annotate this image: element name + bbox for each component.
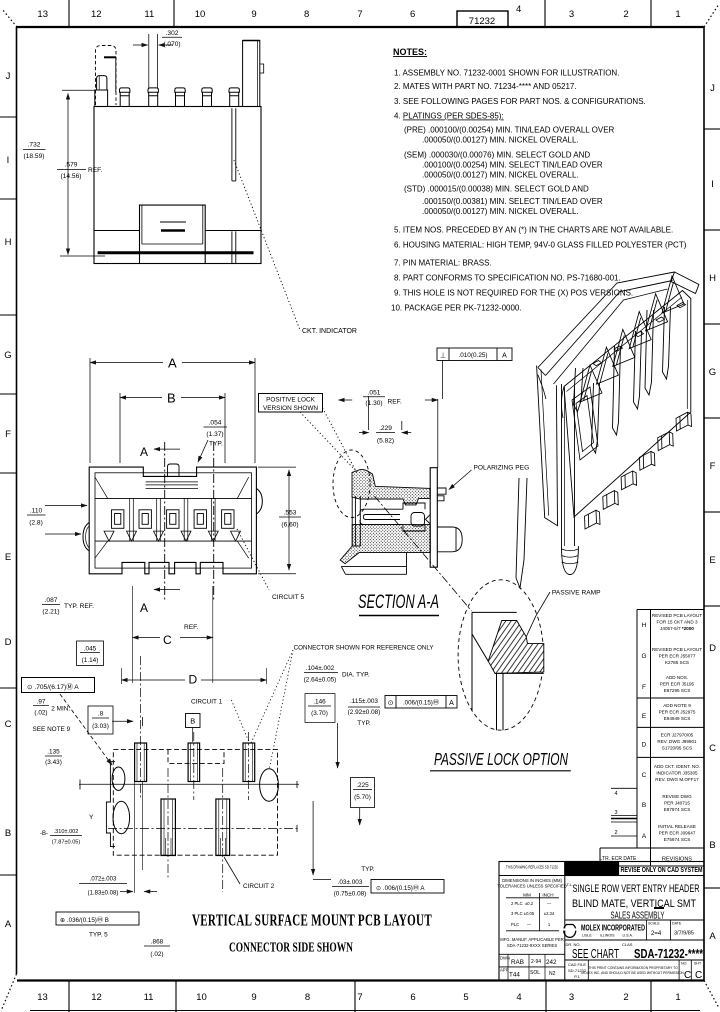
svg-text:.579: .579 xyxy=(65,162,78,169)
svg-text:TYP.: TYP. xyxy=(361,866,375,873)
svg-text:6: 6 xyxy=(410,9,415,20)
svg-text:4: 4 xyxy=(516,4,521,15)
svg-text:⊙: ⊙ xyxy=(388,700,394,707)
svg-text:(18.59): (18.59) xyxy=(24,153,45,160)
svg-text:TYP.: TYP. xyxy=(209,441,223,448)
svg-text:.110: .110 xyxy=(30,508,43,515)
svg-text:5. ITEM NOS. PRECEDED BY AN (*: 5. ITEM NOS. PRECEDED BY AN (*) IN THE C… xyxy=(394,226,673,235)
svg-text:SOL: SOL xyxy=(530,970,540,976)
svg-text:.000150/(0.00381) MIN. SELECT: .000150/(0.00381) MIN. SELECT TIN/LEAD O… xyxy=(422,197,603,206)
svg-text:6. HOUSING MATERIAL: HIGH TEMP: 6. HOUSING MATERIAL: HIGH TEMP, 94V-0 GL… xyxy=(394,241,687,250)
svg-text:SDA-71232-9XXX SERIES: SDA-71232-9XXX SERIES xyxy=(507,943,557,948)
svg-text:DIA. TYP.: DIA. TYP. xyxy=(342,672,370,679)
svg-text:ADD CKT. IDENT. NO.: ADD CKT. IDENT. NO. xyxy=(654,764,700,769)
svg-text:E94949 SCS: E94949 SCS xyxy=(664,716,691,721)
svg-text:B: B xyxy=(5,828,11,839)
svg-text:B: B xyxy=(709,840,715,851)
svg-text:13: 13 xyxy=(37,992,48,1003)
svg-text:(1.83±0.08): (1.83±0.08) xyxy=(88,891,119,897)
svg-text:(3.03): (3.03) xyxy=(92,723,109,730)
svg-text:PER ECR J55077: PER ECR J55077 xyxy=(659,654,696,659)
svg-text:(PRE) .000100/(0.00254) MIN. T: (PRE) .000100/(0.00254) MIN. TIN/LEAD OV… xyxy=(404,126,615,135)
svg-text:NO.: NO. xyxy=(681,962,687,966)
svg-text:3/7/9/85: 3/7/9/85 xyxy=(674,931,694,937)
svg-text:MFG. MANUF. APPLICABLE PER: MFG. MANUF. APPLICABLE PER xyxy=(500,937,564,942)
svg-text:.115±.003: .115±.003 xyxy=(350,698,378,705)
svg-text:N2: N2 xyxy=(549,971,556,977)
svg-text:.03±.003: .03±.003 xyxy=(338,879,363,886)
svg-text:12: 12 xyxy=(91,992,102,1003)
svg-text:A: A xyxy=(140,601,148,615)
svg-text:(2.21): (2.21) xyxy=(42,609,59,616)
svg-text:K2785 SCS: K2785 SCS xyxy=(665,660,689,665)
svg-text:10. PACKAGE PER PK-71232-0000.: 10. PACKAGE PER PK-71232-0000. xyxy=(391,304,522,313)
svg-text:B: B xyxy=(167,391,176,406)
svg-text:242: 242 xyxy=(546,959,557,966)
svg-text:SINGLE ROW VERT ENTRY HEADER: SINGLE ROW VERT ENTRY HEADER xyxy=(573,883,700,895)
svg-text:D: D xyxy=(642,742,647,749)
svg-text:PER ECR J5195: PER ECR J5195 xyxy=(660,682,695,687)
svg-text:REF.: REF. xyxy=(88,167,102,174)
svg-text:3: 3 xyxy=(569,992,574,1003)
svg-text:2: 2 xyxy=(623,992,628,1003)
svg-text:H: H xyxy=(642,622,647,629)
svg-text:2 MIN.: 2 MIN. xyxy=(51,706,70,713)
svg-text:2 PLC: 2 PLC xyxy=(511,901,523,906)
svg-text:THIS PRINT CONTAINS INFORMATIO: THIS PRINT CONTAINS INFORMATION PROPRIET… xyxy=(588,966,678,970)
svg-text:PER ECR J09647: PER ECR J09647 xyxy=(659,831,696,836)
svg-text:I: I xyxy=(7,155,10,166)
svg-text:REV. DWG J99901: REV. DWG J99901 xyxy=(657,739,697,744)
svg-text:(1.30): (1.30) xyxy=(365,400,382,407)
svg-text:.146: .146 xyxy=(313,699,326,706)
svg-text:PASSIVE RAMP: PASSIVE RAMP xyxy=(552,590,601,597)
svg-text:E87974 SCS: E87974 SCS xyxy=(664,807,691,812)
svg-text:1: 1 xyxy=(675,9,680,20)
svg-text:(14.56): (14.56) xyxy=(61,173,82,180)
svg-text:71232: 71232 xyxy=(469,16,495,27)
svg-text:D: D xyxy=(709,643,716,654)
svg-text:.225: .225 xyxy=(356,782,369,789)
svg-text:CIRCUIT 5: CIRCUIT 5 xyxy=(272,594,304,601)
svg-text:7: 7 xyxy=(357,992,362,1003)
svg-text:.000100/(0.00254) MIN. SELECT: .000100/(0.00254) MIN. SELECT TIN/LEAD O… xyxy=(422,161,603,170)
svg-text:DIMENSIONS IN INCHES (MM): DIMENSIONS IN INCHES (MM) xyxy=(502,878,562,883)
svg-text:3: 3 xyxy=(614,810,617,816)
svg-text:I: I xyxy=(711,179,714,190)
svg-text:E: E xyxy=(709,555,715,566)
svg-text:REVISED PCB LAYOUT: REVISED PCB LAYOUT xyxy=(652,647,702,652)
svg-text:9. THIS HOLE IS NOT REQUIRED F: 9. THIS HOLE IS NOT REQUIRED FOR THE (X)… xyxy=(394,289,633,298)
svg-text:±0.05: ±0.05 xyxy=(524,911,535,916)
svg-text:7: 7 xyxy=(357,9,362,20)
svg-text:INCH: INCH xyxy=(542,893,553,898)
svg-text:9: 9 xyxy=(251,992,256,1003)
svg-text:(7.87±0.05): (7.87±0.05) xyxy=(52,840,81,846)
svg-text:1. ASSEMBLY NO. 71232-0001 SHO: 1. ASSEMBLY NO. 71232-0001 SHOWN FOR ILL… xyxy=(394,69,619,78)
svg-text:.302: .302 xyxy=(166,30,179,37)
svg-text:G: G xyxy=(709,367,716,378)
svg-text:E: E xyxy=(642,713,647,720)
svg-text:12: 12 xyxy=(91,9,102,20)
svg-text:10: 10 xyxy=(196,992,207,1003)
svg-text:⊥: ⊥ xyxy=(440,353,446,360)
svg-text:(.070): (.070) xyxy=(163,41,180,48)
svg-text:J4057-5/7 *2000: J4057-5/7 *2000 xyxy=(660,626,694,631)
svg-text:LISLE ILLINOIS U: LISLE ILLINOIS U.S.A. xyxy=(582,934,633,938)
svg-text:(SEM) .000030/(0.00076) MIN. S: (SEM) .000030/(0.00076) MIN. SELECT GOLD… xyxy=(404,151,590,160)
svg-text:D: D xyxy=(189,673,198,687)
svg-text:.732: .732 xyxy=(28,142,41,149)
svg-text:.104±.002: .104±.002 xyxy=(306,665,335,672)
svg-text:3. SEE FOLLOWING PAGES FOR PAR: 3. SEE FOLLOWING PAGES FOR PART NOS. & C… xyxy=(394,97,646,106)
svg-text:S1720/95 SCS: S1720/95 SCS xyxy=(662,746,692,751)
svg-text:.000050/(0.00127) MIN. NICKEL: .000050/(0.00127) MIN. NICKEL OVERALL. xyxy=(422,207,579,216)
svg-text:PASSIVE LOCK OPTION: PASSIVE LOCK OPTION xyxy=(434,749,568,769)
svg-text:(5.70): (5.70) xyxy=(354,794,371,801)
svg-text:F: F xyxy=(642,684,646,691)
svg-text:4: 4 xyxy=(614,791,617,797)
svg-text:.553: .553 xyxy=(284,510,297,517)
svg-text:6: 6 xyxy=(410,992,415,1003)
svg-text:POLARIZING PEG: POLARIZING PEG xyxy=(474,465,530,472)
svg-text:PER J40715: PER J40715 xyxy=(664,801,690,806)
svg-text:.135: .135 xyxy=(47,749,60,756)
svg-text:(2.64±0.05): (2.64±0.05) xyxy=(304,677,337,684)
svg-text:H: H xyxy=(5,237,12,248)
svg-text:G: G xyxy=(641,653,646,660)
svg-text:(2.8): (2.8) xyxy=(29,520,43,527)
svg-text:⊙ .705/(6.17)Ⓜ A: ⊙ .705/(6.17)Ⓜ A xyxy=(27,683,79,691)
svg-text:E87295 SCS: E87295 SCS xyxy=(664,688,691,693)
svg-text:VERTICAL SURFACE MOUNT PCB LAY: VERTICAL SURFACE MOUNT PCB LAYOUT xyxy=(192,911,432,930)
svg-text:11: 11 xyxy=(144,992,154,1003)
svg-text:SDA-71232-****: SDA-71232-**** xyxy=(634,947,703,961)
svg-text:TYP. 5: TYP. 5 xyxy=(89,932,108,939)
svg-text:NOTES:: NOTES: xyxy=(393,47,427,57)
svg-text:SEE CHART: SEE CHART xyxy=(572,947,619,961)
svg-text:2-94: 2-94 xyxy=(531,959,541,965)
svg-text:(6.60): (6.60) xyxy=(281,522,298,529)
svg-text:8: 8 xyxy=(305,992,310,1003)
svg-text:TOLERANCES UNLESS SPECIFIED: TOLERANCES UNLESS SPECIFIED xyxy=(497,884,567,889)
svg-text:C: C xyxy=(684,970,691,981)
svg-text:T44: T44 xyxy=(509,972,520,979)
svg-text:⊙ .006/(0.15)Ⓜ A: ⊙ .006/(0.15)Ⓜ A xyxy=(376,884,425,892)
svg-text:ADD NOS.: ADD NOS. xyxy=(666,675,688,680)
svg-text:DATE: DATE xyxy=(672,922,682,926)
svg-text:REF.: REF. xyxy=(184,624,198,631)
svg-text:.072±.003: .072±.003 xyxy=(90,877,117,883)
svg-text:A: A xyxy=(5,919,12,930)
svg-text:3: 3 xyxy=(569,9,574,20)
svg-text:.97: .97 xyxy=(37,699,46,706)
svg-text:(STD) .000015/(0.00038) MIN. S: (STD) .000015/(0.00038) MIN. SELECT GOLD… xyxy=(404,185,589,194)
svg-text:-B-: -B- xyxy=(40,831,48,837)
svg-text:SECTION A-A: SECTION A-A xyxy=(358,592,439,613)
svg-text:2: 2 xyxy=(614,830,617,836)
svg-text:A: A xyxy=(140,445,148,459)
svg-text:DWN: DWN xyxy=(500,956,510,961)
svg-text:11: 11 xyxy=(144,9,154,20)
svg-text:2: 2 xyxy=(623,9,628,20)
svg-text:.010(0.25): .010(0.25) xyxy=(458,352,487,359)
svg-text:.045: .045 xyxy=(84,646,97,653)
svg-text:(1.14): (1.14) xyxy=(82,657,99,664)
svg-text:.229: .229 xyxy=(379,425,392,432)
svg-text:BLIND MATE, VERTICAL SMT: BLIND MATE, VERTICAL SMT xyxy=(572,898,696,910)
svg-text:TYP. REF.: TYP. REF. xyxy=(64,603,94,610)
svg-text:C: C xyxy=(163,633,172,647)
svg-text:4. PLATINGS (PER SDES-85):: 4. PLATINGS (PER SDES-85): xyxy=(394,112,504,121)
svg-text:APP: APP xyxy=(500,968,509,973)
svg-text:(5.82): (5.82) xyxy=(377,438,394,445)
svg-text:⊕ .036/(0.15)Ⓜ B: ⊕ .036/(0.15)Ⓜ B xyxy=(60,916,109,924)
svg-text:10: 10 xyxy=(195,9,206,20)
svg-text:A: A xyxy=(502,353,507,360)
svg-text:.006/(0.15)Ⓜ: .006/(0.15)Ⓜ xyxy=(403,699,439,707)
svg-text:C: C xyxy=(695,970,702,981)
svg-text:INITIAL RELEASE: INITIAL RELEASE xyxy=(658,824,696,829)
svg-text:Y: Y xyxy=(89,814,94,821)
svg-text:E75674 SCS: E75674 SCS xyxy=(664,837,691,842)
svg-text:.8: .8 xyxy=(98,711,104,718)
svg-text:REVISE DWG: REVISE DWG xyxy=(662,794,692,799)
svg-text:J: J xyxy=(6,71,11,82)
svg-text:REVISED PCB LAYOUT: REVISED PCB LAYOUT xyxy=(652,613,702,618)
svg-text:(3.43): (3.43) xyxy=(45,759,62,766)
svg-text:MOLEX INC. AND SHOULD NOT BE U: MOLEX INC. AND SHOULD NOT BE USED WITHOU… xyxy=(581,971,684,975)
svg-text:.310±.002: .310±.002 xyxy=(54,829,79,835)
svg-text:REVISE ONLY ON CAD SYSTEM: REVISE ONLY ON CAD SYSTEM xyxy=(621,865,703,874)
svg-text:±0.2: ±0.2 xyxy=(525,901,534,906)
svg-text:SALES ASSEMBLY: SALES ASSEMBLY xyxy=(611,911,665,922)
svg-text:CLAS: CLAS xyxy=(622,942,633,947)
svg-text:G: G xyxy=(4,350,11,361)
svg-text:4: 4 xyxy=(516,992,521,1003)
svg-text:13: 13 xyxy=(37,9,48,20)
svg-text:FOR 15 CKT AND 3: FOR 15 CKT AND 3 xyxy=(656,620,697,625)
svg-text:CONNECTOR SHOWN FOR REFERENCE: CONNECTOR SHOWN FOR REFERENCE ONLY xyxy=(294,645,434,652)
svg-text:PER ECR J52975: PER ECR J52975 xyxy=(659,710,696,715)
svg-text:7. PIN MATERIAL: BRASS.: 7. PIN MATERIAL: BRASS. xyxy=(394,259,492,268)
svg-text:SHT: SHT xyxy=(694,962,702,966)
svg-text:CIRCUIT 2: CIRCUIT 2 xyxy=(243,883,275,890)
svg-text:VERSION SHOWN: VERSION SHOWN xyxy=(263,405,318,412)
svg-text:ADD NOTE 9: ADD NOTE 9 xyxy=(663,703,691,708)
svg-text:RAB: RAB xyxy=(511,959,524,966)
svg-text:REV. DWG M.OFF17: REV. DWG M.OFF17 xyxy=(655,777,699,782)
svg-text:.087: .087 xyxy=(45,597,58,604)
svg-text:9: 9 xyxy=(251,9,256,20)
svg-text:F: F xyxy=(710,461,716,472)
svg-text:.000050/(0.00127) MIN. NICKEL: .000050/(0.00127) MIN. NICKEL OVERALL. xyxy=(422,171,579,180)
svg-text:E: E xyxy=(5,552,11,563)
svg-text:J: J xyxy=(710,83,715,94)
svg-text:TYP.: TYP. xyxy=(357,720,371,727)
svg-text:A: A xyxy=(642,833,647,840)
svg-text:PLC: PLC xyxy=(511,922,519,927)
svg-text:CAD FILE: CAD FILE xyxy=(568,962,586,967)
svg-text:F: F xyxy=(5,429,11,440)
svg-text:.868: .868 xyxy=(151,939,164,946)
svg-text:2. MATES WITH PART NO. 71234-*: 2. MATES WITH PART NO. 71234-**** AND 05… xyxy=(394,82,577,91)
svg-text:A: A xyxy=(449,700,454,707)
svg-text:SCALE: SCALE xyxy=(648,922,660,926)
svg-text:8. PART CONFORMS TO SPECIFICAT: 8. PART CONFORMS TO SPECIFICATION NO. PS… xyxy=(394,274,621,283)
svg-text:B: B xyxy=(190,717,195,726)
svg-text:MOLEX INCORPORATED: MOLEX INCORPORATED xyxy=(581,924,645,933)
svg-text:1: 1 xyxy=(675,992,680,1003)
svg-text:.054: .054 xyxy=(209,420,222,427)
svg-text:(1.37): (1.37) xyxy=(206,431,223,438)
svg-text:POSITIVE LOCK: POSITIVE LOCK xyxy=(266,397,315,404)
svg-text:3 PLC: 3 PLC xyxy=(511,911,523,916)
svg-text:(.02): (.02) xyxy=(34,710,47,717)
svg-text:(.02): (.02) xyxy=(150,951,163,958)
svg-text:C: C xyxy=(709,743,716,754)
svg-text:CKT. INDICATOR: CKT. INDICATOR xyxy=(302,328,357,335)
svg-text:2=4: 2=4 xyxy=(651,931,662,937)
svg-text:B: B xyxy=(642,802,646,809)
svg-text:(3.70): (3.70) xyxy=(311,710,328,717)
svg-text:±2.34: ±2.34 xyxy=(544,911,555,916)
svg-text:CONNECTOR SIDE SHOWN: CONNECTOR SIDE SHOWN xyxy=(229,941,353,956)
svg-text:THIS DRAWING REPLACES SD-71232: THIS DRAWING REPLACES SD-71232 xyxy=(506,865,558,870)
svg-text:C: C xyxy=(5,719,12,730)
svg-text:REF.: REF. xyxy=(388,399,402,406)
svg-text:.051: .051 xyxy=(368,390,381,397)
svg-text:5: 5 xyxy=(463,992,468,1003)
svg-text:(2.92±0.08): (2.92±0.08) xyxy=(348,709,381,716)
svg-text:.000050/(0.00127) MIN. NICKEL: .000050/(0.00127) MIN. NICKEL OVERALL. xyxy=(422,136,579,145)
svg-text:A: A xyxy=(709,931,716,942)
svg-text:SEE NOTE 9: SEE NOTE 9 xyxy=(33,726,71,733)
svg-text:CIRCUIT 1: CIRCUIT 1 xyxy=(191,699,223,706)
svg-text:C: C xyxy=(642,772,647,779)
svg-text:MM: MM xyxy=(523,893,531,898)
svg-text:INDICATOR J35305: INDICATOR J35305 xyxy=(656,771,698,776)
svg-text:H: H xyxy=(709,273,716,284)
svg-text:P.1: P.1 xyxy=(574,974,580,979)
svg-text:(0.75±0.08): (0.75±0.08) xyxy=(334,891,367,898)
svg-text:D: D xyxy=(5,637,12,648)
svg-text:A: A xyxy=(168,356,177,371)
svg-text:ECR J27970/05: ECR J27970/05 xyxy=(661,733,694,738)
svg-text:8: 8 xyxy=(304,9,309,20)
